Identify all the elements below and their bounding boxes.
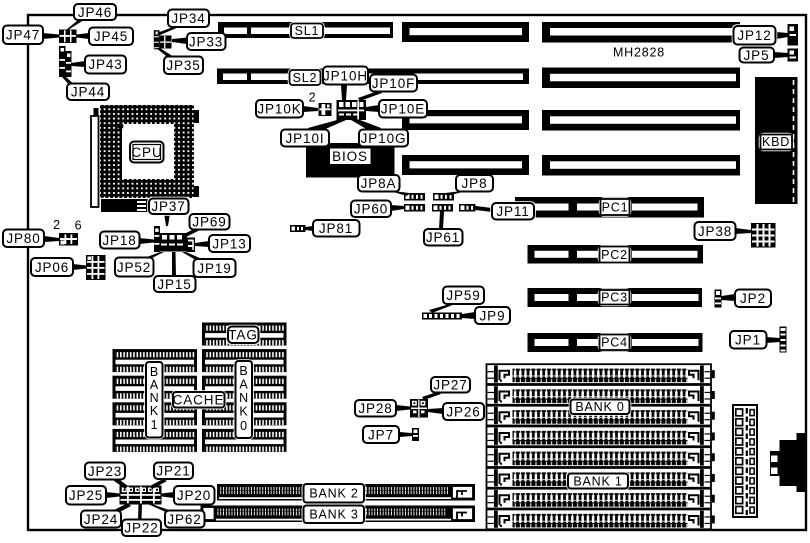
svg-text:JP26: JP26 <box>446 404 480 419</box>
svg-text:JP34: JP34 <box>171 11 205 26</box>
svg-text:BIOS: BIOS <box>332 149 368 164</box>
svg-text:B: B <box>150 365 159 379</box>
svg-text:JP1: JP1 <box>735 333 761 348</box>
svg-text:JP10K: JP10K <box>257 102 301 117</box>
svg-text:K: K <box>239 405 248 419</box>
svg-text:A: A <box>150 378 159 392</box>
svg-text:JP10F: JP10F <box>372 76 416 91</box>
svg-text:2: 2 <box>53 218 61 232</box>
svg-text:1: 1 <box>151 418 159 432</box>
svg-text:JP52: JP52 <box>117 260 151 275</box>
svg-text:JP18: JP18 <box>102 233 136 248</box>
svg-text:N: N <box>150 391 160 405</box>
svg-text:K: K <box>150 404 159 418</box>
svg-text:JP06: JP06 <box>35 260 69 275</box>
svg-text:JP8A: JP8A <box>361 176 397 191</box>
svg-text:JP37: JP37 <box>151 199 185 214</box>
svg-text:TAG: TAG <box>228 328 257 343</box>
svg-text:JP24: JP24 <box>84 512 118 527</box>
svg-text:2: 2 <box>309 91 317 105</box>
svg-text:N: N <box>239 391 249 405</box>
svg-text:PC1: PC1 <box>602 200 629 214</box>
svg-text:JP19: JP19 <box>197 261 231 276</box>
svg-text:CPU: CPU <box>131 145 162 160</box>
svg-text:JP27: JP27 <box>433 378 467 393</box>
svg-text:BANK 3: BANK 3 <box>309 508 358 522</box>
svg-text:JP2: JP2 <box>740 291 766 306</box>
svg-text:JP15: JP15 <box>157 277 191 292</box>
svg-text:JP20: JP20 <box>177 488 211 503</box>
svg-text:JP80: JP80 <box>6 231 40 246</box>
svg-text:JP44: JP44 <box>71 85 105 100</box>
svg-text:JP43: JP43 <box>88 57 122 72</box>
svg-text:CACHE: CACHE <box>173 393 225 408</box>
svg-text:A: A <box>239 378 248 392</box>
svg-text:JP38: JP38 <box>698 224 732 239</box>
svg-text:JP10I: JP10I <box>285 131 324 146</box>
svg-text:JP35: JP35 <box>166 58 200 73</box>
svg-text:JP10E: JP10E <box>381 102 425 117</box>
svg-text:JP60: JP60 <box>354 202 388 217</box>
svg-text:JP47: JP47 <box>6 28 40 43</box>
svg-text:JP10H: JP10H <box>323 69 368 84</box>
svg-text:BANK 1: BANK 1 <box>573 474 622 488</box>
svg-text:PC3: PC3 <box>601 291 628 305</box>
svg-text:JP22: JP22 <box>124 521 158 536</box>
svg-text:JP61: JP61 <box>426 230 460 245</box>
svg-text:JP11: JP11 <box>496 204 529 219</box>
svg-text:6: 6 <box>75 219 83 233</box>
svg-text:PC2: PC2 <box>601 248 628 262</box>
svg-text:JP13: JP13 <box>212 236 246 251</box>
svg-text:JP28: JP28 <box>358 401 392 416</box>
svg-text:JP46: JP46 <box>78 5 112 20</box>
svg-text:PC4: PC4 <box>601 336 628 350</box>
svg-text:JP5: JP5 <box>744 48 770 63</box>
svg-text:JP81: JP81 <box>319 221 353 236</box>
svg-text:JP8: JP8 <box>462 176 488 191</box>
svg-text:JP59: JP59 <box>446 288 480 303</box>
svg-text:JP69: JP69 <box>192 215 226 230</box>
svg-text:SL2: SL2 <box>293 71 318 85</box>
svg-text:JP12: JP12 <box>737 28 771 43</box>
svg-text:JP33: JP33 <box>189 34 223 49</box>
svg-text:JP25: JP25 <box>69 488 103 503</box>
svg-text:JP45: JP45 <box>94 29 128 44</box>
svg-text:JP9: JP9 <box>480 308 506 323</box>
svg-text:JP23: JP23 <box>88 464 122 479</box>
svg-text:KBD: KBD <box>762 135 790 149</box>
svg-text:BANK 2: BANK 2 <box>309 487 358 501</box>
svg-text:JP10G: JP10G <box>361 131 407 146</box>
svg-text:B: B <box>239 364 248 378</box>
svg-text:MH2828: MH2828 <box>613 46 665 60</box>
svg-text:JP62: JP62 <box>167 512 201 527</box>
svg-text:SL1: SL1 <box>295 24 320 38</box>
svg-text:JP7: JP7 <box>368 427 394 442</box>
svg-text:BANK 0: BANK 0 <box>575 400 624 414</box>
svg-text:0: 0 <box>240 419 248 433</box>
svg-text:JP21: JP21 <box>156 464 190 479</box>
